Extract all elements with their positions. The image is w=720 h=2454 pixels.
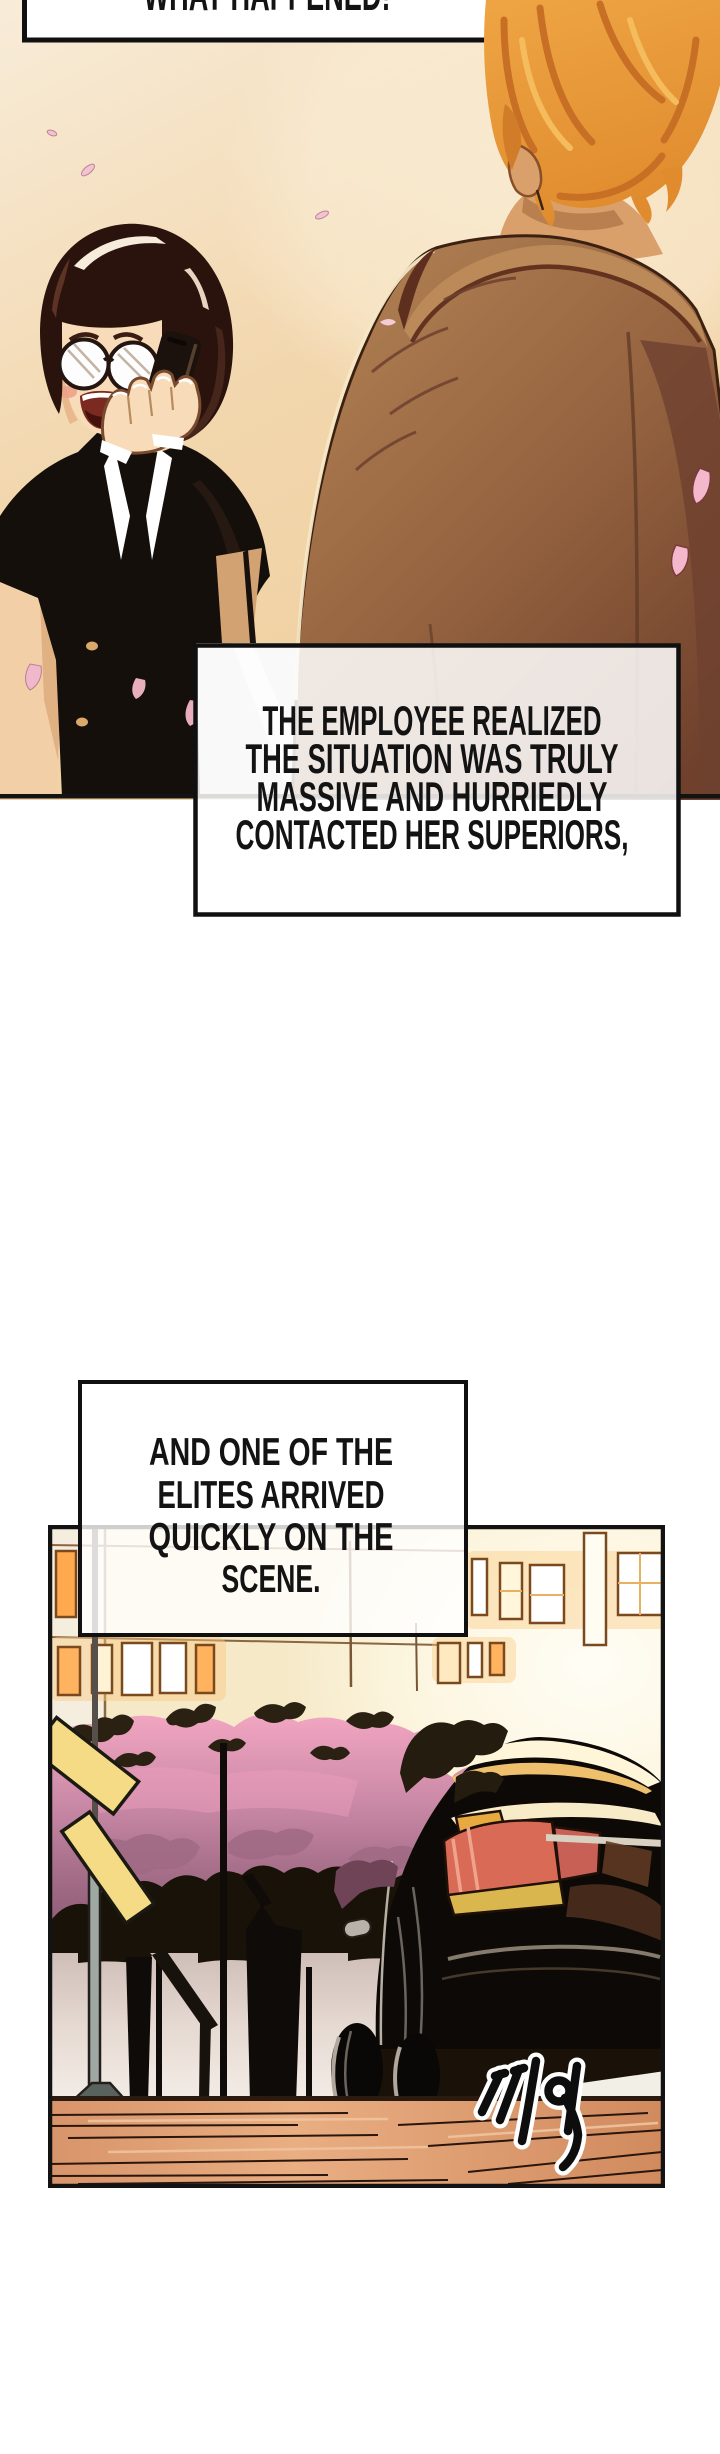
svg-text:AND ONE OF THE: AND ONE OF THE: [149, 1431, 393, 1474]
svg-text:ELITES ARRIVED: ELITES ARRIVED: [158, 1474, 385, 1517]
svg-text:SCENE.: SCENE.: [222, 1558, 321, 1601]
svg-text:CONTACTED HER SUPERIORS,: CONTACTED HER SUPERIORS,: [236, 811, 629, 858]
svg-text:QUICKLY ON THE: QUICKLY ON THE: [149, 1516, 394, 1559]
svg-text:WHAT HAPPENED!: WHAT HAPPENED!: [144, 0, 391, 20]
